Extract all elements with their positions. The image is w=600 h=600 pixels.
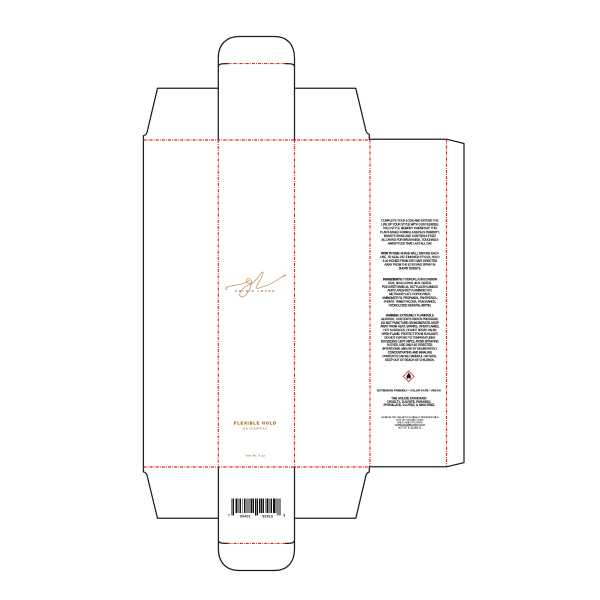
svg-text:GOLDIE LOCKS: GOLDIE LOCKS	[235, 289, 276, 293]
svg-text:93910: 93910	[262, 514, 273, 518]
svg-text:09402: 09402	[240, 514, 251, 518]
svg-text:3: 3	[283, 514, 285, 518]
svg-text:7: 7	[228, 514, 230, 518]
